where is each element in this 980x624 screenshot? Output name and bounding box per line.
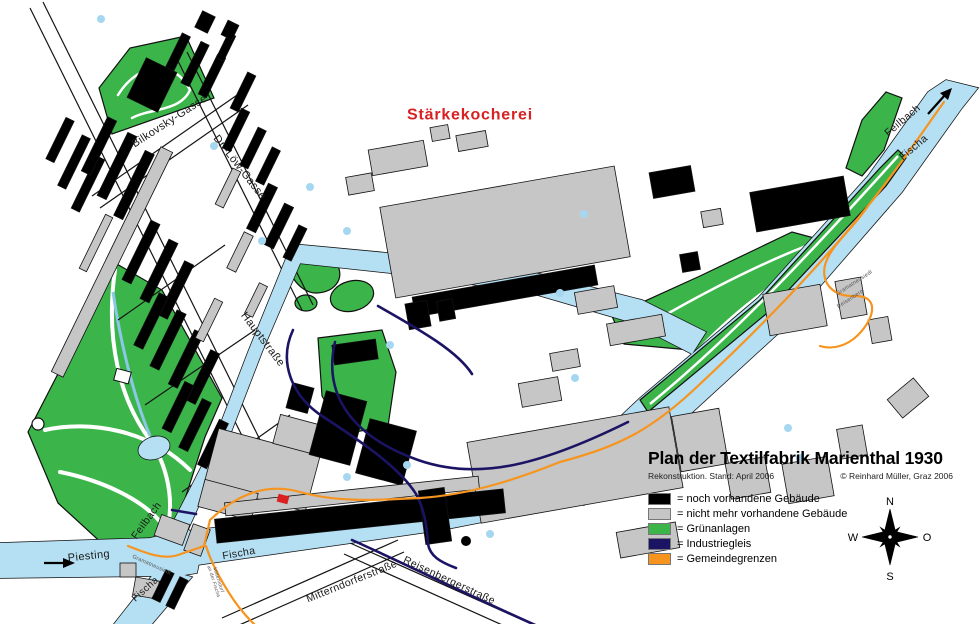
building	[195, 11, 215, 33]
building	[195, 298, 222, 341]
water-dot	[556, 289, 564, 297]
area-label-staerkekocherei: Stärkekocherei	[407, 108, 533, 125]
legend-row-green-areas: = Grünanlagen	[648, 521, 978, 536]
chimney-mark	[461, 536, 471, 546]
building	[518, 377, 562, 408]
building	[46, 117, 74, 162]
building	[120, 563, 136, 577]
legend-row-gone-buildings: = nicht mehr vorhandene Gebäude	[648, 506, 978, 521]
legend-swatch-green	[648, 523, 671, 535]
legend-swatch-boundary	[648, 553, 671, 565]
legend-rows: = noch vorhandene Gebäude = nicht mehr v…	[648, 491, 978, 566]
legend-copyright: © Reinhard Müller, Graz 2006	[840, 471, 953, 481]
water-dot	[403, 461, 411, 469]
map-canvas: N O S W Stärkekocherei Bilkovsky-Gasse D…	[0, 0, 980, 624]
legend-row-boundaries: = Gemeindegrenzen	[648, 551, 978, 566]
building	[368, 140, 428, 175]
water-dot	[571, 374, 579, 382]
compass-south-label: S	[886, 571, 893, 583]
building	[230, 72, 256, 112]
park-plaza	[32, 418, 44, 430]
building	[430, 125, 450, 142]
legend-subtitle: Rekonstruktion. Stand: April 2006	[648, 471, 774, 481]
building	[868, 316, 892, 343]
legend-label: = Grünanlagen	[677, 523, 750, 535]
building	[550, 349, 581, 372]
building	[456, 131, 488, 152]
water-dot	[580, 210, 588, 218]
building	[887, 378, 928, 418]
legend-swatch-existing	[648, 493, 671, 505]
water-dot	[97, 15, 105, 23]
legend-label: = nicht mehr vorhandene Gebäude	[677, 508, 847, 520]
legend-label: = Gemeindegrenzen	[677, 553, 777, 565]
water-dot	[306, 183, 314, 191]
legend: Plan der Textilfabrik Marienthal 1930 Re…	[648, 448, 978, 566]
water-dot	[784, 424, 792, 432]
building	[436, 299, 455, 321]
water-dot	[343, 227, 351, 235]
water-dot	[343, 473, 351, 481]
legend-row-rail: = Industriegleis	[648, 536, 978, 551]
water-dot	[486, 530, 494, 538]
legend-swatch-rail	[648, 538, 671, 550]
water-dot	[258, 237, 266, 245]
building	[346, 173, 375, 195]
building	[227, 232, 254, 272]
building	[256, 147, 281, 185]
legend-label: = noch vorhandene Gebäude	[677, 493, 820, 505]
legend-row-existing-buildings: = noch vorhandene Gebäude	[648, 491, 978, 506]
legend-label: = Industriegleis	[677, 538, 751, 550]
building	[286, 383, 314, 414]
building	[649, 166, 695, 199]
building	[680, 252, 701, 273]
building	[264, 203, 293, 249]
building	[221, 20, 239, 40]
water-dot	[386, 341, 394, 349]
legend-swatch-gone	[648, 508, 671, 520]
building	[701, 208, 723, 227]
legend-title: Plan der Textilfabrik Marienthal 1930	[648, 448, 978, 469]
